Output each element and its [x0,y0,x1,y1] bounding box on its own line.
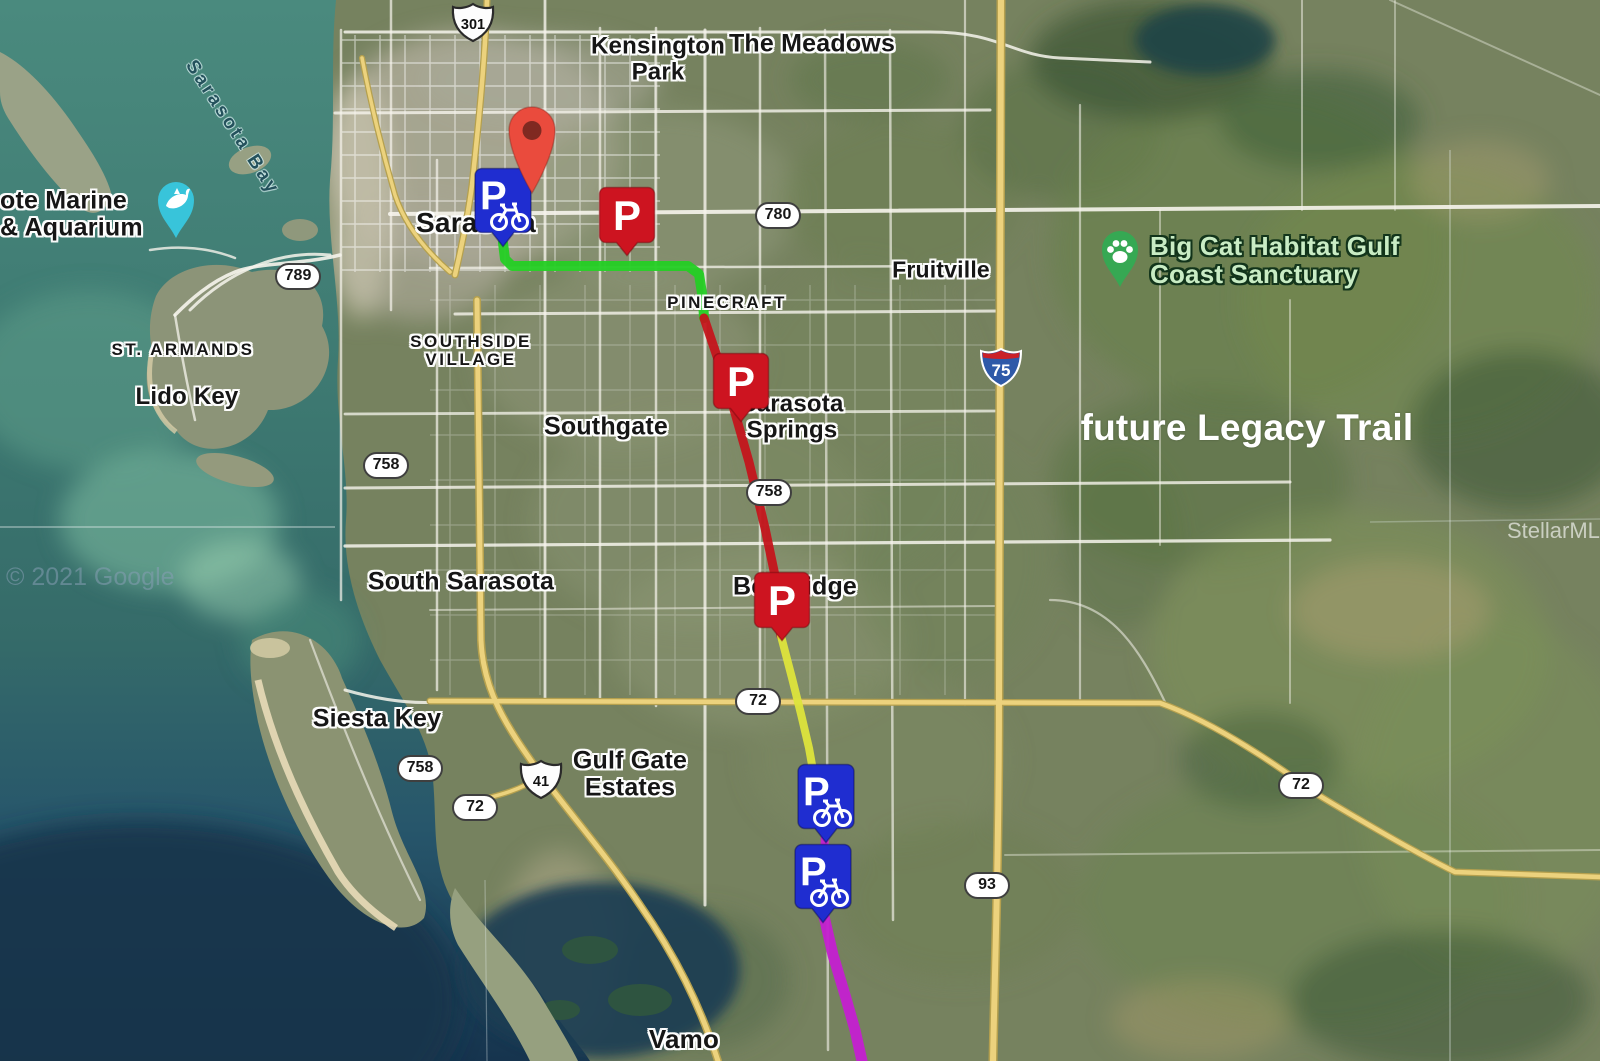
satellite-map-canvas[interactable]: Kensington ParkThe MeadowsSarasotaFruitv… [0,0,1600,1061]
google-attribution: © 2021 Google [6,563,175,592]
map-marker-parking-sarasota-springs[interactable]: P [712,352,770,423]
map-marker-red-location-pin[interactable] [506,103,558,195]
map-marker-parking-780[interactable]: P [598,186,656,257]
svg-text:P: P [803,770,830,814]
svg-text:P: P [480,174,507,218]
map-marker-mote-marine-dolphin-pin[interactable] [156,181,196,239]
map-marker-bike-parking-gulf-gate-south[interactable]: P [793,843,853,923]
map-marker-big-cat-paw-pin[interactable] [1100,230,1140,288]
svg-text:P: P [613,192,641,239]
map-markers-layer: P P P P P P [0,0,1600,1061]
map-marker-bike-parking-gulf-gate-north[interactable]: P [796,763,856,843]
map-marker-parking-bee-ridge[interactable]: P [753,571,811,642]
svg-text:P: P [800,850,827,894]
stellar-mls-watermark: StellarMLS [1507,518,1600,544]
svg-text:P: P [727,358,755,405]
svg-text:P: P [768,577,796,624]
